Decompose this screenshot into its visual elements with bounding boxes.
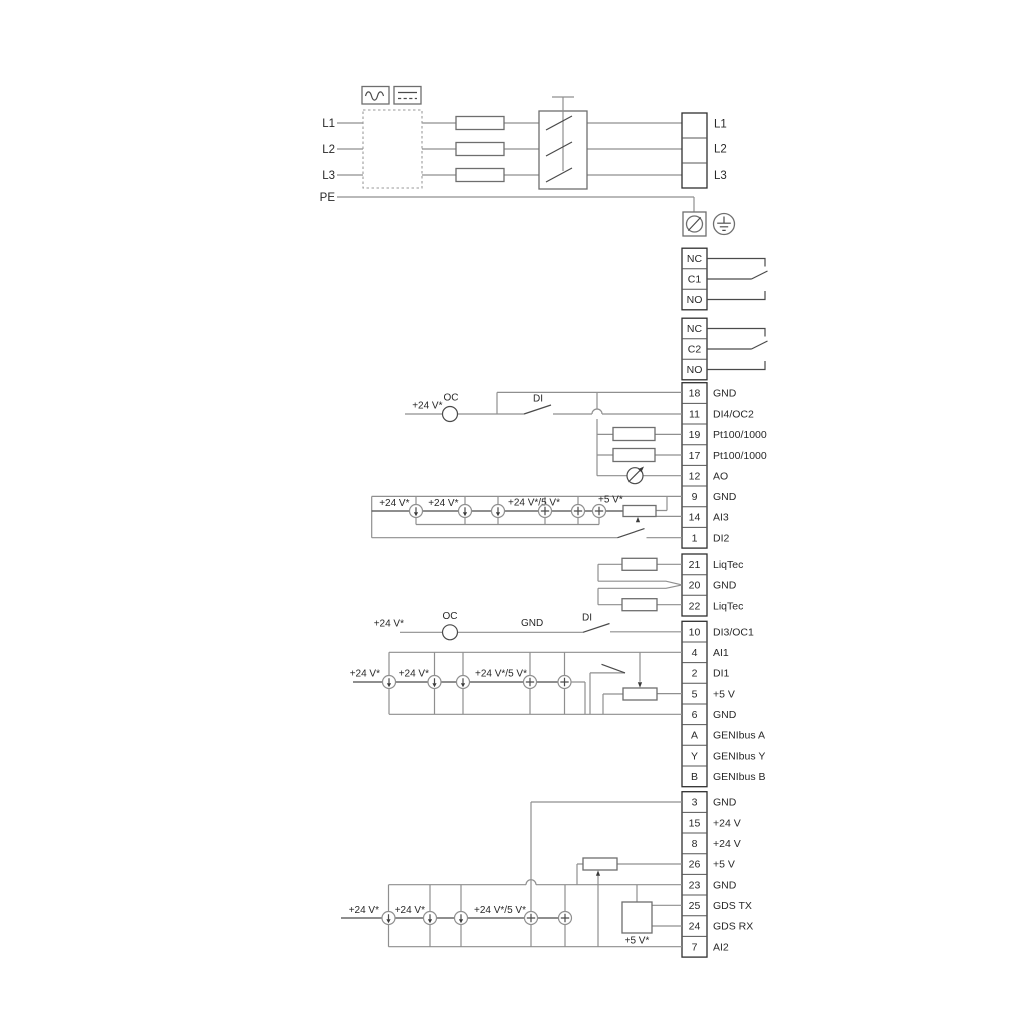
fuse-l1 [456,117,504,130]
input-label-l1: L1 [322,118,335,130]
terminal-number: 4 [692,647,698,659]
mains-terminal-label-l3: L3 [714,170,727,182]
terminal-number: 8 [692,838,698,850]
terminal-label: GND [713,491,737,503]
ai3-potentiometer [623,506,656,517]
terminal-label: DI4/OC2 [713,408,754,420]
terminal-number: 17 [689,450,701,462]
wire-label-oc: OC [443,611,458,622]
wire-label-24v: +24 V* [350,669,380,680]
terminal-number: 12 [689,470,701,482]
wire-label-24v: +24 V* [399,669,429,680]
terminal-number: B [691,771,698,783]
terminal-label: +5 V [713,688,735,700]
ai2-pot-wiper-arrow [596,870,600,875]
wire-label-24v: +24 V* [374,619,404,630]
relay1-no: NO [687,294,703,306]
terminal-label: GDS RX [713,921,753,933]
io-group-a: 18 GND 11 DI4/OC2 19 Pt100/1000 17 Pt100… [372,383,767,548]
wire-label-5v: +5 V* [625,936,650,947]
terminal-number: 15 [689,817,701,829]
wire-label-24v: +24 V* [379,498,409,509]
terminal-label: AO [713,470,728,482]
terminal-number: 23 [689,879,701,891]
terminal-label: DI2 [713,532,730,544]
mains-terminal-label-l2: L2 [714,144,727,156]
wire-label-oc: OC [444,393,459,404]
terminal-number: 10 [689,626,701,638]
terminal-label: GDS TX [713,900,752,912]
terminal-label: GENIbus A [713,730,765,742]
terminal-number: 1 [692,532,698,544]
wire-label-24v: +24 V* [349,905,379,916]
relay2-nc: NC [687,323,703,335]
terminal-label: AI1 [713,647,729,659]
terminal-label: GENIbus Y [713,750,765,762]
ai1-potentiometer [623,688,657,700]
ai3-pot-wiper-arrow [636,517,640,522]
relay1-nc: NC [687,253,703,265]
liqtec-sensor-2 [622,599,657,611]
di4-switch-contact [524,405,551,414]
input-label-l3: L3 [322,170,335,182]
terminal-number: A [691,730,698,742]
terminal-number: 2 [692,668,698,680]
terminal-number: 24 [689,921,701,933]
wire-label-5v: +5 V* [598,495,623,506]
terminal-number: 3 [692,797,698,809]
input-label-pe: PE [320,192,336,204]
di2-switch-contact [618,529,645,538]
sink-arrow-shafts [389,507,499,919]
pt100-sensor-2 [613,449,655,462]
terminal-label: Pt100/1000 [713,450,767,462]
filter-box [363,110,422,188]
terminal-label: DI3/OC1 [713,626,754,638]
terminal-number: 5 [692,688,698,700]
fuse-l3 [456,169,504,182]
io-group-b: 10 DI3/OC1 4 AI1 2 DI1 5 +5 V 6 GND A GE… [350,611,766,787]
relay-output-2: NC C2 NO [682,318,768,380]
terminal-number: 25 [689,900,701,912]
dc-symbol-box [394,87,421,105]
terminal-label: DI1 [713,668,730,680]
mains-terminal-block [682,113,707,188]
terminal-number: 11 [689,408,700,420]
terminal-label: Pt100/1000 [713,429,767,441]
terminal-label: GENIbus B [713,771,766,783]
liqtec-sensor-1 [622,558,657,570]
terminal-label: +5 V [713,859,735,871]
terminal-number: Y [691,750,698,762]
gds-sensor-box [622,902,652,933]
terminal-label: +24 V [713,838,741,850]
pt100-sensor-1 [613,428,655,441]
relay1-c1: C1 [688,274,702,286]
group-b-wires [389,632,682,715]
mains-input-section: L1 L2 L3 PE L1 L2 L3 [320,87,735,237]
terminal-label: AI2 [713,941,729,953]
terminal-label: LiqTec [713,559,743,571]
meter-needle [629,470,642,483]
wire-label-di: DI [533,394,543,405]
terminal-label: GND [713,580,737,592]
terminal-number: 18 [689,388,701,400]
liqtec-group: 21 LiqTec 20 GND 22 LiqTec [598,554,743,616]
terminal-number: 21 [689,559,701,571]
terminal-number: 20 [689,580,701,592]
io-group-c: 3 GND 15 +24 V 8 +24 V 26 +5 V 23 GND 25… [341,792,753,957]
terminal-label: AI3 [713,512,729,524]
wire-label-24v-5v: +24 V*/5 V* [474,905,526,916]
terminal-label: GND [713,709,737,721]
relay2-no: NO [687,364,703,376]
wiring-diagram-page: L1 L2 L3 PE L1 L2 L3 [0,0,1024,1024]
open-collector-icon [443,625,458,640]
input-label-l2: L2 [322,144,335,156]
wire-label-24v: +24 V* [412,401,442,412]
wire-label-gnd: GND [521,618,543,629]
terminal-number: 26 [689,859,701,871]
wire-label-24v: +24 V* [428,498,458,509]
terminal-number: 22 [689,600,701,612]
wire-label-24v-5v: +24 V*/5 V* [475,669,527,680]
terminal-number: 6 [692,709,698,721]
terminal-label: LiqTec [713,600,743,612]
terminal-label: GND [713,797,737,809]
terminal-number: 14 [689,512,701,524]
mains-wires [337,123,694,212]
relay-output-1: NC C1 NO [682,248,768,310]
terminal-number: 9 [692,491,698,503]
sink-arrow-heads [386,512,500,923]
relay2-contact-symbol [707,329,768,370]
terminal-label: GND [713,388,737,400]
terminal-label: GND [713,879,737,891]
fuse-l2 [456,143,504,156]
ai1-pot-wiper-arrow [638,682,642,688]
wire-jump-hump [592,409,602,414]
ai2-potentiometer [583,858,617,870]
wire-label-24v: +24 V* [395,905,425,916]
relay1-contact-symbol [707,259,768,300]
wiring-diagram: L1 L2 L3 PE L1 L2 L3 [0,0,1024,1024]
wire-label-24v-5v: +24 V*/5 V* [508,498,560,509]
terminal-number: 19 [689,429,701,441]
terminal-number: 7 [692,941,698,953]
mains-terminal-label-l1: L1 [714,119,727,131]
terminal-label: +24 V [713,817,741,829]
open-collector-icon [443,407,458,422]
relay2-c2: C2 [688,344,702,356]
wire-label-di: DI [582,613,592,624]
